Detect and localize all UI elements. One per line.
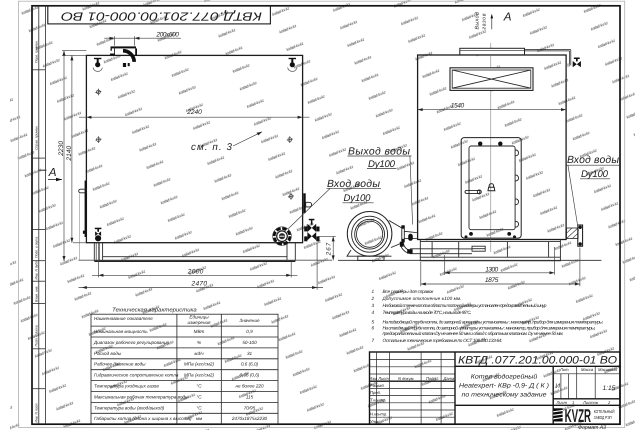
svg-text:А: А [503, 11, 512, 24]
svg-text:0,06 (0,6): 0,06 (0,6) [240, 373, 260, 378]
svg-text:Вход воды: Вход воды [567, 155, 619, 166]
svg-text:не более 220: не более 220 [235, 384, 263, 389]
svg-text:МПа (кгс/см2): МПа (кгс/см2) [184, 373, 214, 378]
svg-text:Максимальная рабочая температу: Максимальная рабочая температура воды [94, 394, 189, 399]
svg-text:Лист: Лист [377, 376, 389, 381]
svg-text:Инв. N дубл.: Инв. N дубл. [35, 260, 39, 280]
svg-text:м3/ч: м3/ч [194, 351, 204, 356]
svg-text:Дата: Дата [443, 376, 456, 381]
svg-text:Справ. примен.: Справ. примен. [35, 126, 39, 150]
svg-text:предохранительный клапан Dу н: предохранительный клапан Dу не менее 50 … [383, 331, 564, 336]
svg-text:N докум.: N докум. [398, 376, 415, 381]
svg-text:МПа (кгс/см2): МПа (кгс/см2) [184, 362, 214, 367]
svg-text:Температура воды на входе 70°: Температура воды на входе 70°С, на выход… [383, 310, 472, 315]
svg-text:31: 31 [247, 351, 253, 356]
svg-text:Рабочее давление воды: Рабочее давление воды [94, 362, 146, 367]
svg-text:267: 267 [326, 242, 333, 256]
svg-text:200x600: 200x600 [155, 32, 179, 39]
svg-text:2: 2 [371, 296, 375, 301]
svg-text:Подп: Подп [426, 376, 437, 381]
svg-text:1: 1 [372, 289, 375, 294]
svg-text:2140: 2140 [66, 145, 73, 161]
svg-text:Инв. N подл.: Инв. N подл. [35, 403, 39, 423]
svg-text:мм: мм [196, 416, 203, 421]
svg-text:6: 6 [372, 326, 375, 331]
svg-text:Проб.: Проб. [370, 390, 381, 395]
svg-text:0,6 (6,0): 0,6 (6,0) [241, 362, 259, 367]
svg-text:Heatexpert- КВр -0,9- Д ( К ): Heatexpert- КВр -0,9- Д ( К ) [459, 383, 549, 390]
svg-text:°С: °С [196, 384, 202, 389]
svg-text:см. п. 3: см. п. 3 [191, 142, 233, 153]
svg-text:Техническая характеристика: Техническая характеристика [112, 308, 197, 314]
svg-text:Масса: Масса [581, 367, 594, 372]
svg-text:Габариты котла (длина х ширина: Габариты котла (длина х ширина х высота) [94, 416, 192, 421]
svg-text:2470: 2470 [191, 281, 208, 288]
svg-text:КВТД .077.201.00.000-01 ВО: КВТД .077.201.00.000-01 ВО [458, 354, 618, 366]
svg-text:2230: 2230 [58, 141, 65, 157]
svg-text:70/95: 70/95 [244, 405, 256, 410]
svg-text:0,9: 0,9 [246, 329, 253, 334]
svg-text:°С: °С [196, 394, 202, 399]
svg-text:1875: 1875 [485, 277, 499, 284]
svg-text:На подводящей трубе котла, д: На подводящей трубе котла, до запорной а… [383, 319, 604, 324]
svg-text:МВт: МВт [194, 329, 205, 334]
svg-text:2000: 2000 [187, 269, 204, 276]
svg-text:50-100: 50-100 [242, 340, 257, 345]
svg-text:Перв. примен.: Перв. примен. [35, 40, 39, 63]
svg-text:2240: 2240 [186, 109, 202, 116]
svg-text:Температура уходящих газов: Температура уходящих газов [94, 384, 159, 389]
svg-text:Утв.: Утв. [370, 419, 379, 424]
svg-text:газов: газов [482, 13, 488, 29]
svg-text:KVZR: KVZR [565, 405, 592, 426]
svg-text:Все размеры для справок: Все размеры для справок [383, 289, 435, 294]
svg-text:Диапазон рабочего регулировани: Диапазон рабочего регулирования [93, 340, 170, 345]
svg-text:Наименование показателя: Наименование показателя [94, 316, 153, 321]
svg-text:Допустимое отклонение ±100 мм: Допустимое отклонение ±100 мм. [382, 296, 462, 301]
svg-text:И: И [555, 383, 560, 390]
svg-text:Dy100: Dy100 [581, 169, 609, 180]
svg-text:°С: °С [196, 405, 202, 410]
svg-text:Формат А3: Формат А3 [578, 425, 606, 430]
svg-text:1540: 1540 [451, 103, 465, 110]
svg-text:Подп. и дата: Подп. и дата [35, 237, 39, 258]
svg-text:Взам. инв.: Взам. инв. [35, 286, 39, 302]
svg-text:2470х1875х2230: 2470х1875х2230 [231, 416, 268, 421]
svg-text:КВТД.077.201.00.000-01 ВО: КВТД.077.201.00.000-01 ВО [61, 10, 262, 24]
svg-text:КОТЕЛЬНЫЙ: КОТЕЛЬНЫЙ [594, 409, 615, 414]
svg-text:5: 5 [372, 319, 375, 324]
svg-text:по техническому задание: по техническому задание [462, 392, 547, 399]
svg-text:Значение: Значение [239, 318, 260, 323]
svg-text:На отводящей трубе котла, до з: На отводящей трубе котла, до запорной ар… [383, 326, 596, 331]
svg-text:Масштаб: Масштаб [598, 367, 618, 372]
svg-text:7: 7 [372, 338, 375, 343]
svg-text:3: 3 [372, 303, 375, 308]
svg-text:Единицы: Единицы [189, 315, 209, 320]
svg-text:1300: 1300 [485, 266, 498, 273]
svg-text:1:15: 1:15 [603, 385, 616, 392]
svg-text:Изм: Изм [369, 376, 377, 381]
svg-text:Разраб.: Разраб. [370, 383, 385, 388]
svg-text:Выход: Выход [475, 12, 481, 29]
svg-text:%: % [197, 340, 201, 345]
svg-text:Гидравлическое сопротивление к: Гидравлическое сопротивление котла [94, 373, 179, 378]
svg-text:Лит.: Лит. [559, 367, 570, 372]
svg-text:115: 115 [246, 394, 254, 399]
svg-text:4: 4 [372, 310, 375, 315]
svg-text:измерения: измерения [188, 320, 212, 325]
svg-text:Температура воды (вход/выход): Температура воды (вход/выход) [94, 405, 165, 410]
svg-text:Остальные технические требован: Остальные технические требования по ОСТ … [383, 338, 503, 343]
svg-text:ЗАВОД РЭП: ЗАВОД РЭП [594, 415, 612, 420]
svg-text:Расход воды: Расход воды [94, 351, 122, 356]
svg-text:Подп. и дата: Подп. и дата [35, 325, 39, 346]
svg-text:Котел водогрейный: Котел водогрейный [471, 374, 538, 381]
svg-text:Н.контр.: Н.контр. [370, 412, 387, 417]
svg-text:Номинальная мощность: Номинальная мощность [94, 329, 148, 334]
svg-text:А: А [48, 166, 57, 179]
svg-text:Т.контр.: Т.контр. [370, 397, 387, 402]
svg-text:На боковой стенке котла в обла: На боковой стенке котла в области топочн… [383, 303, 547, 308]
